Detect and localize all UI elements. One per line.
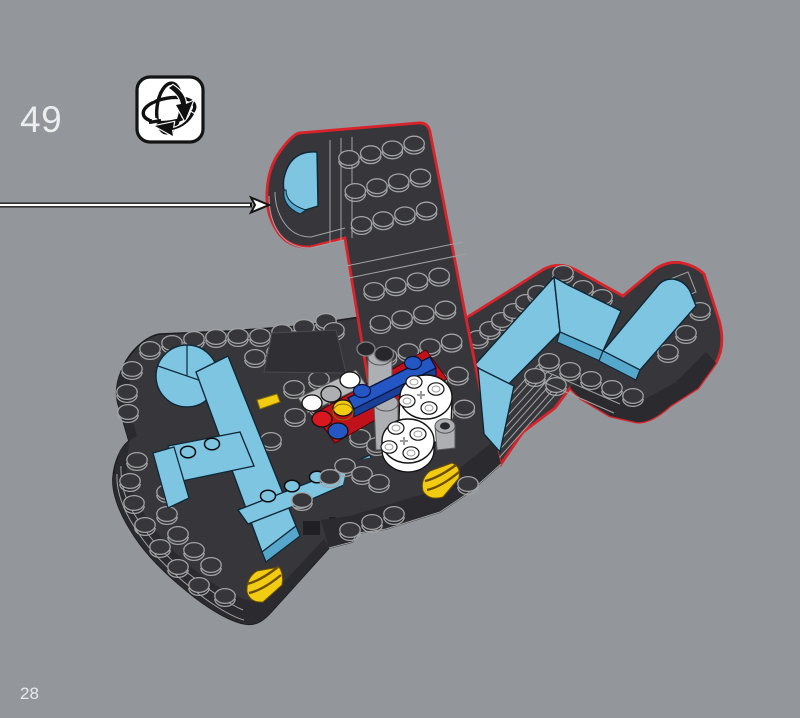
svg-text:28: 28 xyxy=(20,684,39,703)
svg-text:49: 49 xyxy=(20,99,62,140)
